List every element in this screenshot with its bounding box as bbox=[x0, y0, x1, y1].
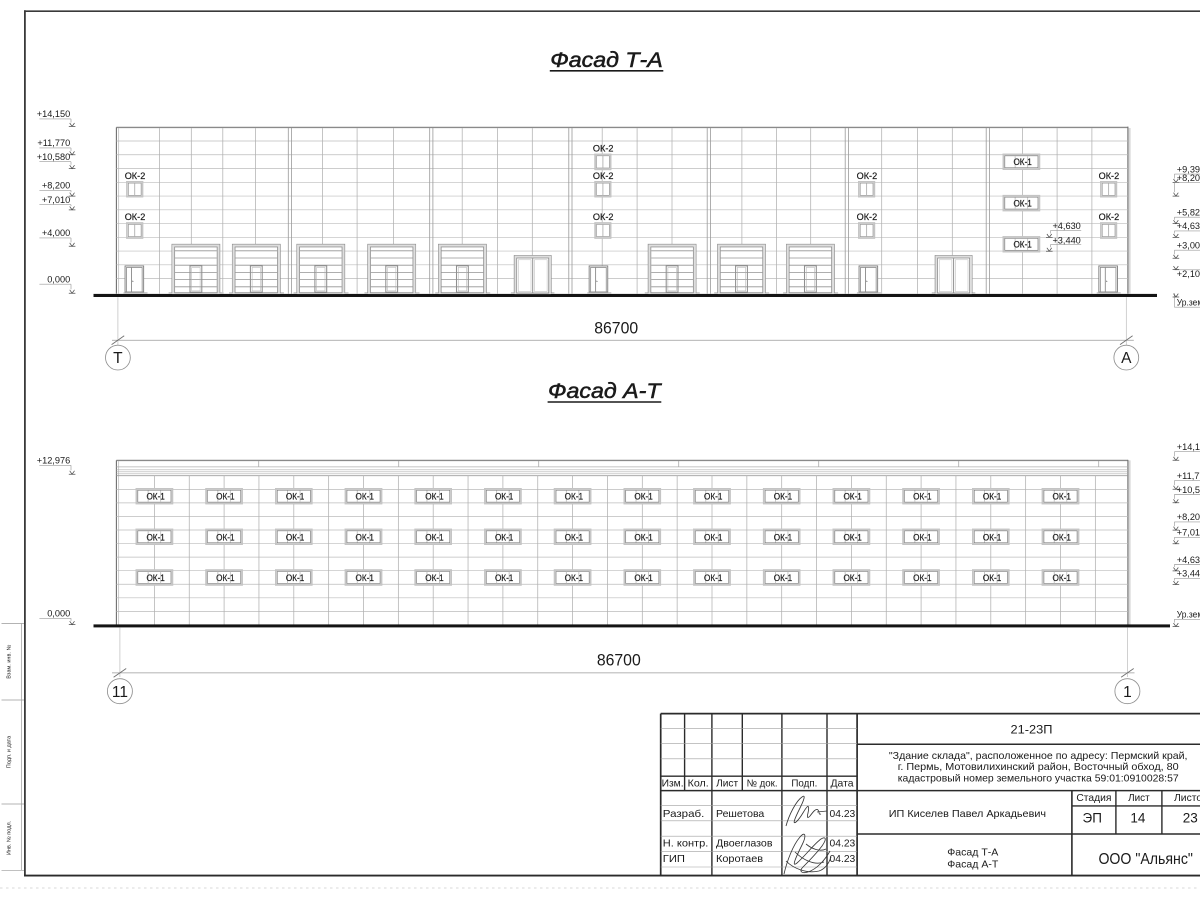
svg-text:+2,100: +2,100 bbox=[1177, 269, 1200, 279]
svg-text:0,000: 0,000 bbox=[47, 275, 70, 285]
svg-text:ОК-2: ОК-2 bbox=[125, 171, 146, 181]
svg-text:Ур.земли: Ур.земли bbox=[1177, 298, 1200, 308]
svg-text:Лист: Лист bbox=[716, 779, 738, 790]
svg-text:Фасад Т-А: Фасад Т-А bbox=[947, 848, 998, 859]
svg-text:Лист: Лист bbox=[1128, 793, 1150, 804]
svg-text:ОК-2: ОК-2 bbox=[857, 171, 878, 181]
svg-text:+11,770: +11,770 bbox=[1177, 471, 1200, 481]
svg-text:ИП Киселев Павел Аркадьевич: ИП Киселев Павел Аркадьевич bbox=[889, 809, 1046, 820]
svg-text:+7,010: +7,010 bbox=[1177, 528, 1200, 538]
svg-text:11: 11 bbox=[112, 684, 128, 701]
svg-text:ОК-2: ОК-2 bbox=[1099, 171, 1120, 181]
svg-text:23: 23 bbox=[1183, 811, 1198, 826]
svg-text:ОК-2: ОК-2 bbox=[593, 144, 614, 154]
svg-text:"Здание склада", расположенное: "Здание склада", расположенное по адресу… bbox=[889, 751, 1188, 762]
svg-text:86700: 86700 bbox=[594, 320, 638, 338]
svg-text:Фасад Т-А: Фасад Т-А bbox=[550, 48, 663, 72]
svg-text:04.23: 04.23 bbox=[830, 809, 856, 820]
svg-text:Стадия: Стадия bbox=[1076, 793, 1111, 804]
svg-text:Двоеглазов: Двоеглазов bbox=[716, 839, 773, 850]
svg-text:Разраб.: Разраб. bbox=[663, 808, 705, 820]
svg-text:Взам. инв. №: Взам. инв. № bbox=[7, 645, 13, 679]
svg-text:21-23П: 21-23П bbox=[1011, 722, 1053, 736]
svg-text:+10,580: +10,580 bbox=[1177, 485, 1200, 495]
svg-text:Кол.: Кол. bbox=[688, 779, 709, 790]
svg-text:ОК-2: ОК-2 bbox=[593, 212, 614, 222]
svg-text:+5,820: +5,820 bbox=[1177, 208, 1200, 218]
svg-text:Подп.: Подп. bbox=[791, 779, 817, 790]
svg-text:+7,010: +7,010 bbox=[42, 195, 70, 205]
svg-text:А: А bbox=[1121, 350, 1132, 367]
svg-text:№ док.: № док. bbox=[747, 779, 778, 790]
svg-text:+14,150: +14,150 bbox=[37, 109, 70, 119]
svg-text:г. Пермь, Мотовилихинский райо: г. Пермь, Мотовилихинский район, Восточн… bbox=[898, 761, 1179, 773]
svg-text:Инв. № подл.: Инв. № подл. bbox=[7, 820, 13, 855]
svg-text:Фасад А-Т: Фасад А-Т bbox=[947, 859, 999, 870]
svg-text:ГИП: ГИП bbox=[663, 854, 685, 865]
svg-text:Н. контр.: Н. контр. bbox=[663, 839, 709, 850]
svg-text:Изм.: Изм. bbox=[662, 779, 684, 790]
svg-text:14: 14 bbox=[1130, 811, 1146, 826]
svg-text:+4,000: +4,000 bbox=[42, 228, 70, 238]
svg-text:+3,440: +3,440 bbox=[1052, 235, 1080, 245]
svg-text:+4,630: +4,630 bbox=[1177, 555, 1200, 565]
svg-text:04.23: 04.23 bbox=[830, 854, 856, 865]
svg-text:ОК-2: ОК-2 bbox=[857, 212, 878, 222]
svg-text:Подп. и дата: Подп. и дата bbox=[7, 735, 13, 768]
svg-text:+3,440: +3,440 bbox=[1177, 569, 1200, 579]
svg-text:ОК-2: ОК-2 bbox=[1099, 212, 1120, 222]
svg-text:+12,976: +12,976 bbox=[37, 456, 70, 466]
svg-text:кадастровый номер земельного у: кадастровый номер земельного участка 59:… bbox=[898, 774, 1179, 785]
svg-text:ОК-2: ОК-2 bbox=[593, 171, 614, 181]
svg-text:ЭП: ЭП bbox=[1082, 811, 1101, 826]
svg-text:+10,580: +10,580 bbox=[37, 152, 70, 162]
svg-text:Т: Т bbox=[113, 350, 123, 367]
svg-text:+4,630: +4,630 bbox=[1177, 221, 1200, 231]
svg-text:+3,000: +3,000 bbox=[1177, 241, 1200, 251]
svg-text:Решетова: Решетова bbox=[716, 809, 765, 820]
svg-text:0,000: 0,000 bbox=[47, 609, 70, 619]
svg-text:+11,770: +11,770 bbox=[37, 138, 70, 148]
svg-text:Листов: Листов bbox=[1174, 793, 1200, 804]
svg-text:+8,200: +8,200 bbox=[42, 181, 70, 191]
svg-text:86700: 86700 bbox=[597, 651, 641, 669]
svg-text:Коротаев: Коротаев bbox=[716, 854, 763, 865]
svg-text:Ур.земли: Ур.земли bbox=[1177, 610, 1200, 620]
svg-text:ООО "Альянс": ООО "Альянс" bbox=[1098, 851, 1193, 868]
svg-text:04.23: 04.23 bbox=[830, 839, 856, 850]
svg-text:+8,200: +8,200 bbox=[1177, 173, 1200, 183]
svg-text:+4,630: +4,630 bbox=[1052, 221, 1080, 231]
svg-text:1: 1 bbox=[1123, 684, 1132, 701]
svg-text:Фасад А-Т: Фасад А-Т bbox=[548, 379, 663, 403]
svg-text:ОК-2: ОК-2 bbox=[125, 212, 146, 222]
svg-text:+8,200: +8,200 bbox=[1177, 512, 1200, 522]
svg-text:+14,150: +14,150 bbox=[1177, 442, 1200, 452]
svg-text:Дата: Дата bbox=[831, 779, 854, 790]
